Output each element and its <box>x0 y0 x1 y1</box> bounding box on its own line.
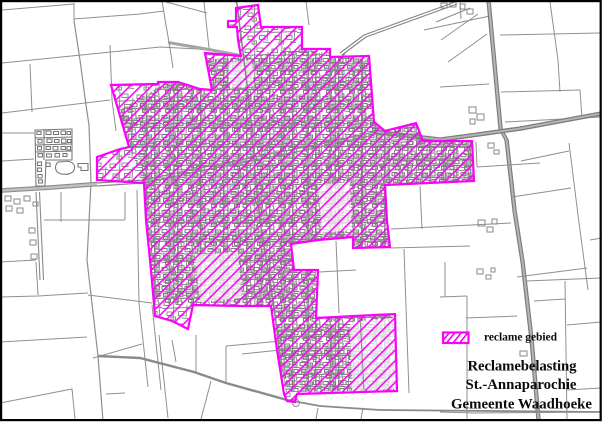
svg-text:St.-Annaparochie: St.-Annaparochie <box>466 377 577 393</box>
svg-text:Reclamebelasting: Reclamebelasting <box>468 359 578 375</box>
svg-text:Gemeente Waadhoeke: Gemeente Waadhoeke <box>451 397 592 413</box>
svg-text:reclame gebied: reclame gebied <box>484 332 558 344</box>
